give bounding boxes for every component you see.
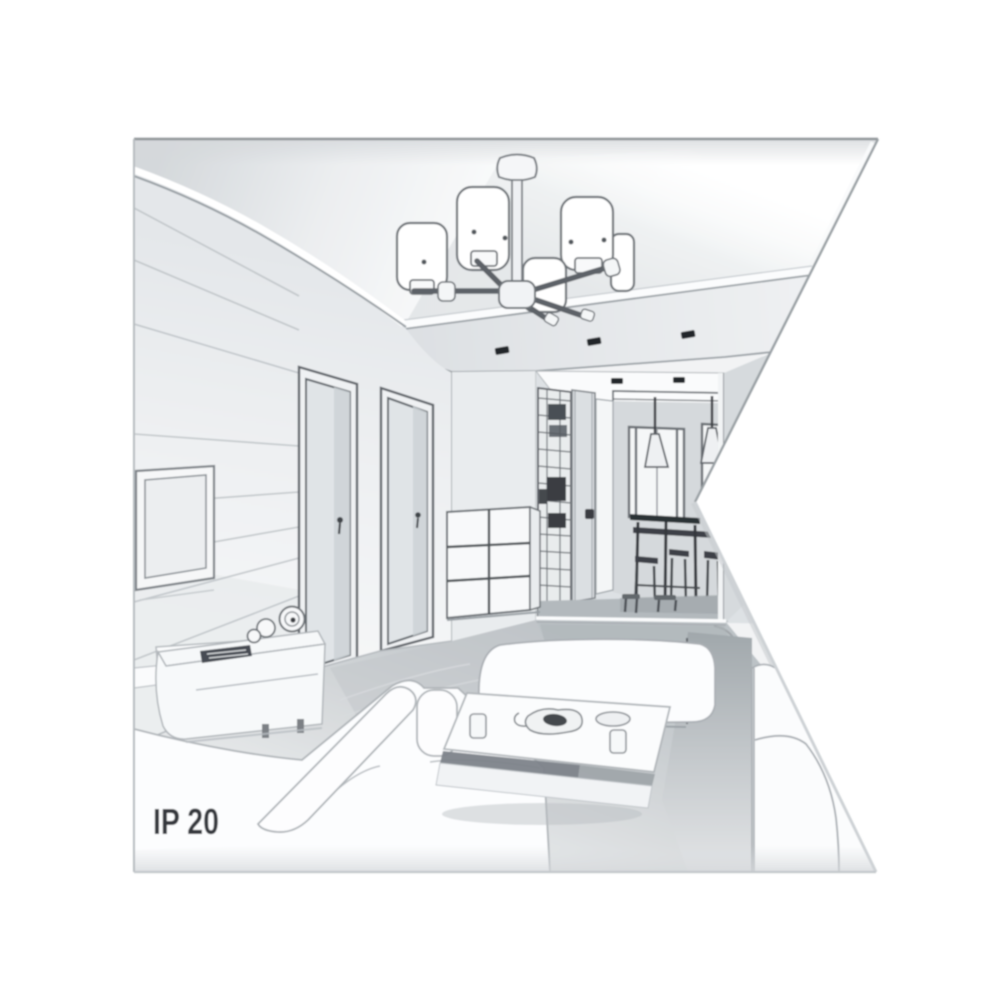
svg-text:IP 20: IP 20 bbox=[153, 801, 219, 842]
